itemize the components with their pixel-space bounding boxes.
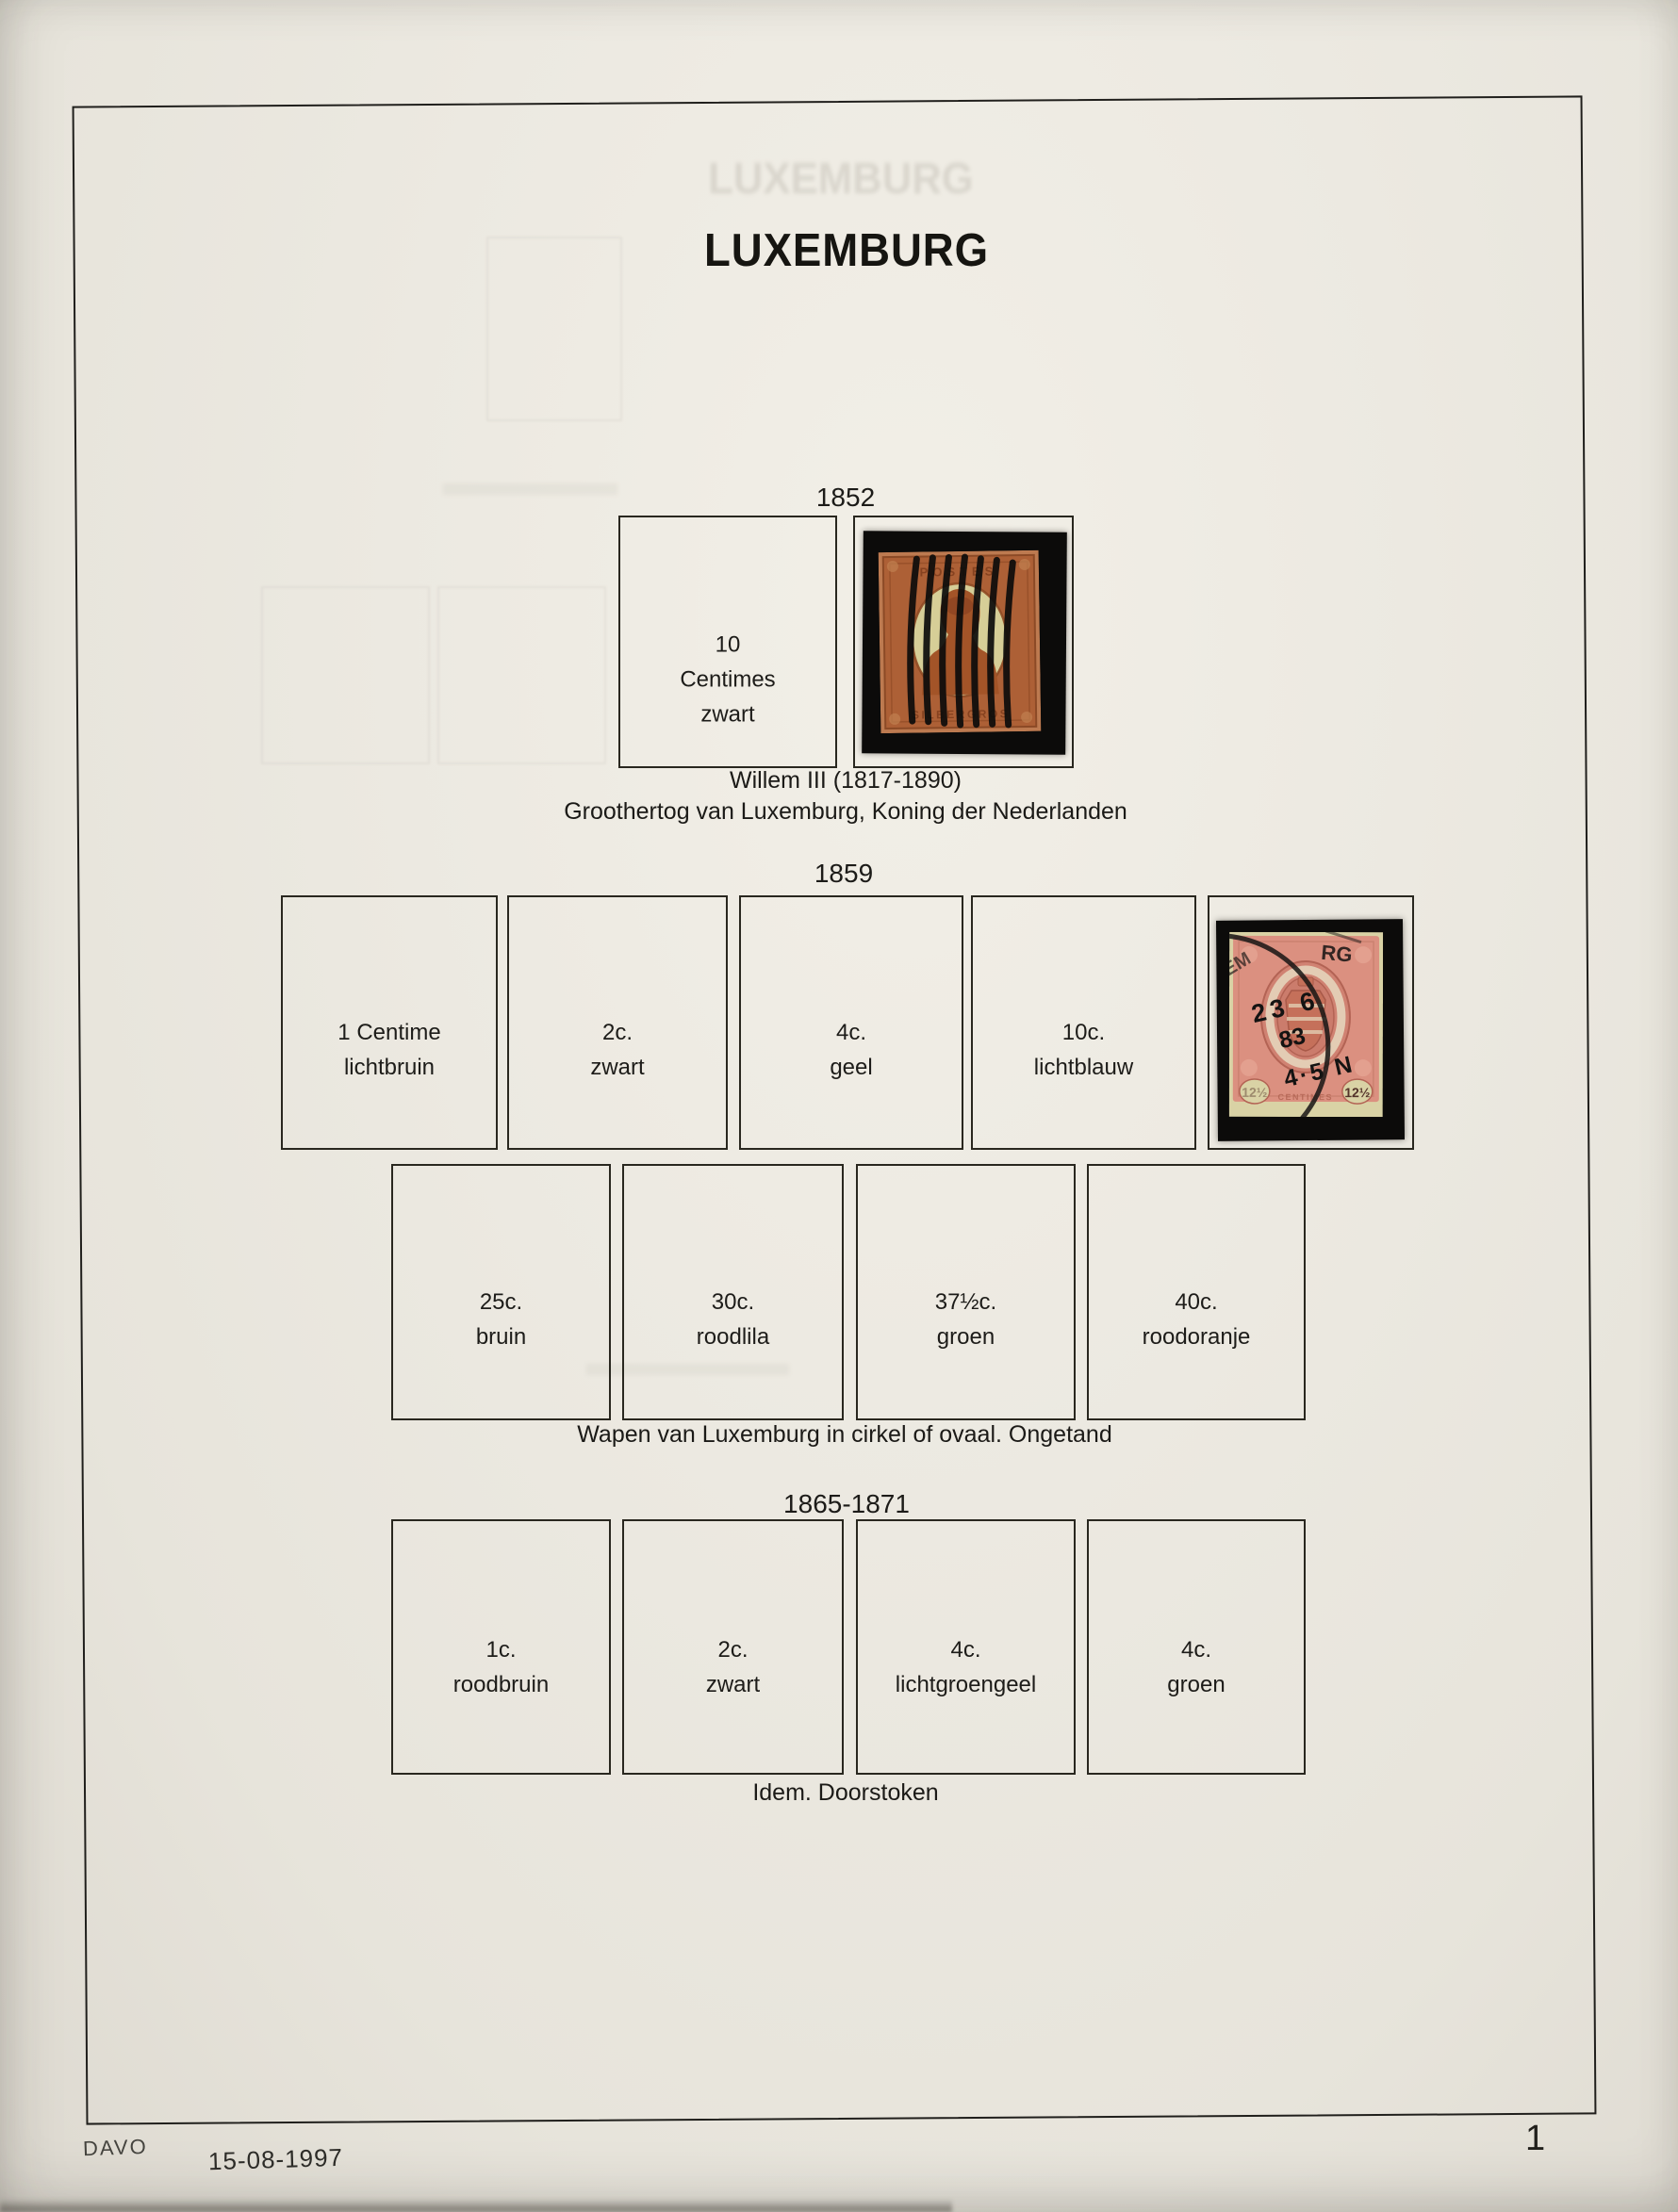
stamp-box-label: 10 Centimes zwart (674, 627, 781, 731)
edition-date: 15-08-1997 (208, 2143, 344, 2176)
stamp-1859-wapen-art: 12½ 12½ CENTIMES EM RG 23 6 83 4·5 N (1229, 932, 1383, 1117)
stamp-box-label: 40c. roodoranje (1143, 1285, 1251, 1354)
stamp-box-1852-mounted: POSTES SILBERGROS (853, 516, 1074, 768)
value-tablet-right: 12½ (1344, 1085, 1371, 1100)
stamp-box-4c-geel: 4c. geel (739, 895, 963, 1150)
stamp-box-1c-roodbruin: 1c. roodbruin (391, 1519, 611, 1775)
stamp-box-label: 4c. lichtgroengeel (896, 1632, 1036, 1702)
stamp-box-25c-bruin: 25c. bruin (391, 1164, 611, 1420)
stamp-box-label: 37½c. groen (935, 1285, 996, 1354)
stamp-box-30c-roodlila: 30c. roodlila (622, 1164, 844, 1420)
stamp-box-label: 10c. lichtblauw (1034, 1015, 1133, 1085)
stamp-box-1c-lichtbruin: 1 Centime lichtbruin (281, 895, 498, 1150)
stamp-mount: 12½ 12½ CENTIMES EM RG 23 6 83 4·5 N (1216, 919, 1405, 1141)
stamp-mount: POSTES SILBERGROS (862, 531, 1067, 755)
stamp-box-label: 2c. zwart (590, 1015, 644, 1085)
photo-edge-shadow (0, 2199, 952, 2212)
year-label-1859: 1859 (814, 859, 873, 889)
stamp-box-10c-lichtblauw: 10c. lichtblauw (971, 895, 1196, 1150)
stamp-box-2c-zwart: 2c. zwart (507, 895, 728, 1150)
stamp-box-4c-lichtgroengeel: 4c. lichtgroengeel (856, 1519, 1076, 1775)
stamp-box-10c-zwart: 10 Centimes zwart (618, 516, 837, 768)
stamp-box-4c-groen: 4c. groen (1087, 1519, 1306, 1775)
stamp-box-37half-groen: 37½c. groen (856, 1164, 1076, 1420)
stamp-box-label: 2c. zwart (706, 1632, 760, 1702)
caption-idem-doorstoken: Idem. Doorstoken (752, 1778, 938, 1809)
stamp-bottom-text: CENTIMES (1278, 1092, 1334, 1102)
caption-willem-iii: Willem III (1817-1890) Groothertog van L… (564, 765, 1127, 827)
stamp-box-label: 1c. roodbruin (453, 1632, 549, 1702)
stamp-box-label: 25c. bruin (476, 1285, 526, 1354)
stamp-box-40c-roodoranje: 40c. roodoranje (1087, 1164, 1306, 1420)
caption-wapen: Wapen van Luxemburg in cirkel of ovaal. … (577, 1419, 1111, 1450)
stamp-box-1859-mounted: 12½ 12½ CENTIMES EM RG 23 6 83 4·5 N (1208, 895, 1414, 1150)
stamp-1852-willem-iii-art: POSTES SILBERGROS (879, 550, 1042, 733)
value-tablet-left: 12½ (1242, 1085, 1268, 1100)
stamp-box-label: 4c. geel (830, 1015, 872, 1085)
stamp-box-label: 1 Centime lichtbruin (337, 1015, 440, 1085)
album-page-photo: LUXEMBURG LUXEMBURG 1852 10 Centimes zwa… (0, 0, 1678, 2212)
year-label-1852: 1852 (816, 483, 875, 513)
stamp-box-label: 30c. roodlila (697, 1285, 769, 1354)
publisher-mark: DAVO (83, 2135, 149, 2161)
cancel-arc-right: RG (1320, 941, 1353, 967)
stamp-box-2c-zwart-1865: 2c. zwart (622, 1519, 844, 1775)
page-number: 1 (1525, 2119, 1545, 2159)
page-title: LUXEMBURG (704, 224, 989, 277)
stamp-box-label: 4c. groen (1167, 1632, 1225, 1702)
year-label-1865-1871: 1865-1871 (783, 1489, 910, 1519)
